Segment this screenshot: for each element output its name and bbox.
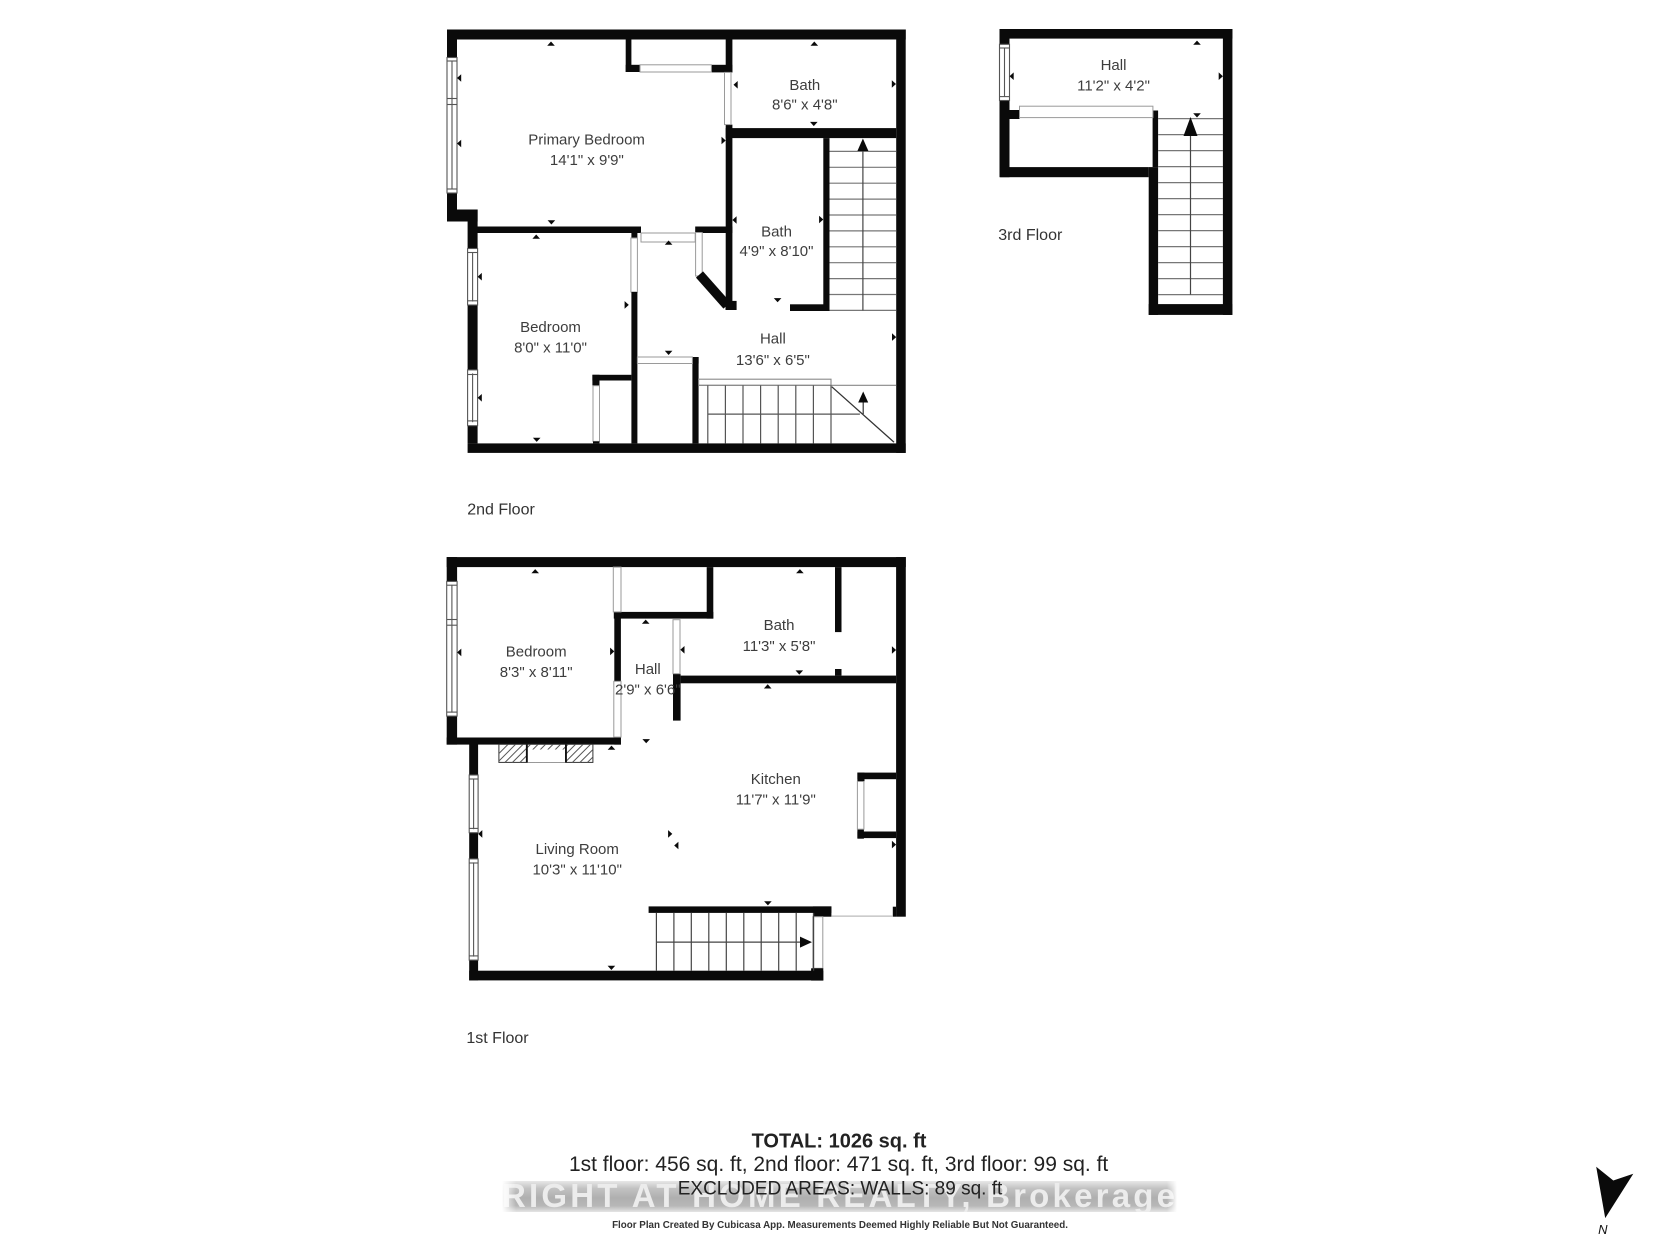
- svg-text:8'6" x 4'8": 8'6" x 4'8": [772, 96, 838, 113]
- svg-text:11'3" x 5'8": 11'3" x 5'8": [743, 638, 816, 655]
- svg-text:Floor Plan Created By Cubicasa: Floor Plan Created By Cubicasa App. Meas…: [612, 1220, 1068, 1231]
- svg-text:1st Floor: 1st Floor: [466, 1030, 529, 1047]
- svg-text:11'2" x 4'2": 11'2" x 4'2": [1077, 78, 1150, 95]
- svg-text:10'3" x 11'10": 10'3" x 11'10": [532, 862, 622, 879]
- svg-text:Hall: Hall: [635, 661, 661, 678]
- svg-text:8'3" x 8'11": 8'3" x 8'11": [500, 664, 573, 681]
- svg-text:TOTAL: 1026 sq. ft: TOTAL: 1026 sq. ft: [752, 1131, 927, 1153]
- svg-text:Primary Bedroom: Primary Bedroom: [528, 132, 645, 149]
- svg-text:4'9" x 8'10": 4'9" x 8'10": [740, 243, 814, 260]
- svg-text:Bath: Bath: [789, 77, 820, 94]
- svg-text:EXCLUDED AREAS: WALLS: 89 sq.: EXCLUDED AREAS: WALLS: 89 sq. ft: [678, 1179, 1003, 1200]
- svg-text:13'6" x 6'5": 13'6" x 6'5": [736, 352, 810, 369]
- svg-text:Hall: Hall: [1101, 57, 1127, 74]
- svg-text:Bath: Bath: [761, 224, 792, 241]
- svg-text:Kitchen: Kitchen: [751, 771, 801, 788]
- svg-text:2nd Floor: 2nd Floor: [467, 502, 535, 519]
- svg-text:Bedroom: Bedroom: [506, 643, 567, 660]
- svg-text:Bath: Bath: [764, 617, 795, 634]
- svg-text:8'0" x 11'0": 8'0" x 11'0": [514, 339, 587, 356]
- svg-text:Living Room: Living Room: [536, 841, 619, 858]
- svg-text:1st floor: 456 sq. ft, 2nd flo: 1st floor: 456 sq. ft, 2nd floor: 471 sq…: [569, 1153, 1108, 1176]
- svg-text:Hall: Hall: [760, 331, 786, 348]
- svg-text:3rd Floor: 3rd Floor: [998, 227, 1063, 244]
- svg-text:Bedroom: Bedroom: [520, 319, 581, 336]
- svg-text:11'7" x 11'9": 11'7" x 11'9": [736, 791, 816, 808]
- svg-text:2'9" x 6'6": 2'9" x 6'6": [615, 682, 681, 699]
- svg-text:14'1" x 9'9": 14'1" x 9'9": [550, 152, 624, 169]
- svg-text:N: N: [1598, 1222, 1608, 1237]
